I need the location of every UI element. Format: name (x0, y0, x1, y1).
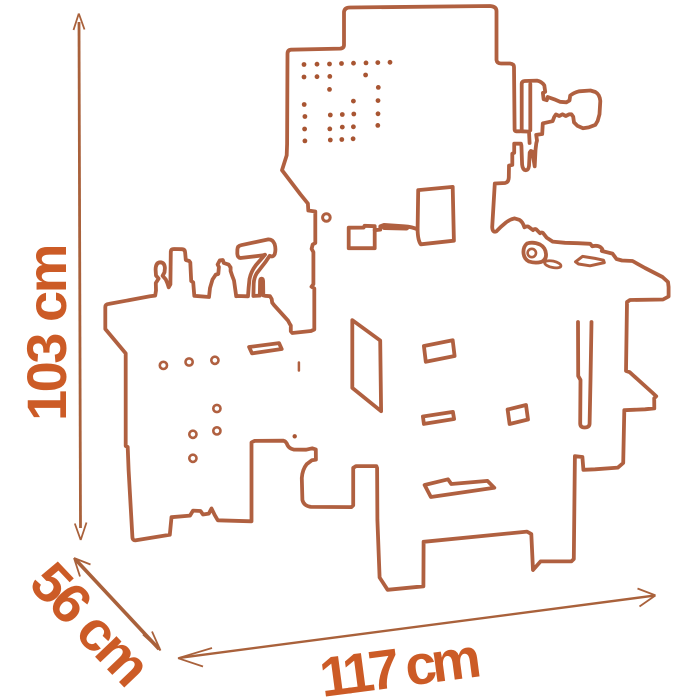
svg-text:103 cm: 103 cm (15, 246, 78, 421)
svg-text:56 cm: 56 cm (18, 550, 161, 696)
